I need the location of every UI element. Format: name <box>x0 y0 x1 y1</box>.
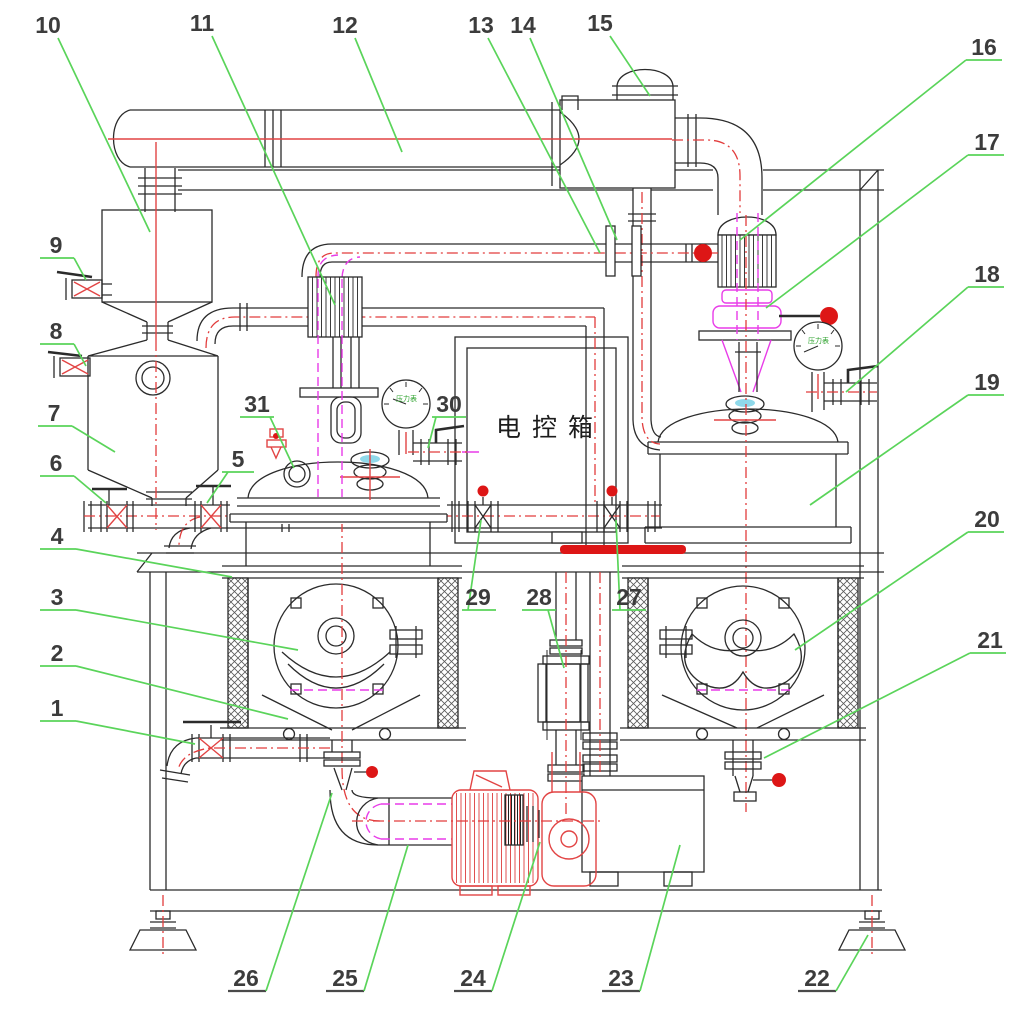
callout-28: 28 <box>526 584 552 610</box>
callout-9: 9 <box>50 232 63 258</box>
equipment-assembly-drawing: 电控箱 压力表 <box>0 0 1027 1012</box>
callout-24: 24 <box>460 965 486 991</box>
callout-21: 21 <box>977 627 1003 653</box>
filter-cylinder-top <box>612 70 678 101</box>
callout-15: 15 <box>587 10 613 36</box>
callout-19: 19 <box>974 369 1000 395</box>
leveling-foot-right <box>839 895 905 958</box>
left-gauge-label: 压力表 <box>396 394 417 403</box>
left-reactor <box>230 449 447 566</box>
right-tank-drain-valve <box>725 740 786 801</box>
callout-17: 17 <box>974 129 1000 155</box>
callout-26: 26 <box>233 965 259 991</box>
callout-6: 6 <box>50 450 63 476</box>
drain-line <box>160 722 330 782</box>
callout-10: 10 <box>35 12 61 38</box>
callout-29: 29 <box>465 584 491 610</box>
right-pressure-gauge: 压力表 <box>794 322 878 412</box>
callout-16: 16 <box>971 34 997 60</box>
callout-2: 2 <box>51 640 64 666</box>
right-gauge-label: 压力表 <box>808 336 829 345</box>
control-box: 电控箱 <box>455 337 628 543</box>
callout-27: 27 <box>616 584 642 610</box>
condenser-outlet-elbow <box>672 114 762 215</box>
pump-motor <box>452 771 539 895</box>
callout-5: 5 <box>232 446 245 472</box>
right-vessel <box>645 215 851 812</box>
filter-vessel-valve <box>48 352 90 378</box>
callout-12: 12 <box>332 12 358 38</box>
tank-outlet-valve <box>324 740 380 845</box>
left-insulated-tank <box>220 500 466 766</box>
receiver-vessel <box>102 142 212 340</box>
callout-1: 1 <box>51 695 64 721</box>
upper-transfer-pipe <box>302 226 718 278</box>
callout-30: 30 <box>436 391 462 417</box>
callout-7: 7 <box>48 400 61 426</box>
leveling-foot-left <box>130 895 196 958</box>
condenser <box>108 96 675 188</box>
callout-11: 11 <box>190 10 215 36</box>
callout-13: 13 <box>468 12 494 38</box>
callout-4: 4 <box>51 523 64 549</box>
callout-18: 18 <box>974 261 1000 287</box>
callout-20: 20 <box>974 506 1000 532</box>
right-insulated-tank <box>620 566 866 740</box>
callout-3: 3 <box>51 584 64 610</box>
vacuum-pump-box <box>582 776 704 886</box>
callout-14: 14 <box>510 12 536 38</box>
callout-8: 8 <box>50 318 63 344</box>
control-box-label: 电控箱 <box>496 413 604 442</box>
callout-31: 31 <box>244 391 270 417</box>
callout-25: 25 <box>332 965 358 991</box>
callout-22: 22 <box>804 965 830 991</box>
red-emphasis-bar <box>560 545 686 554</box>
callout-23: 23 <box>608 965 634 991</box>
